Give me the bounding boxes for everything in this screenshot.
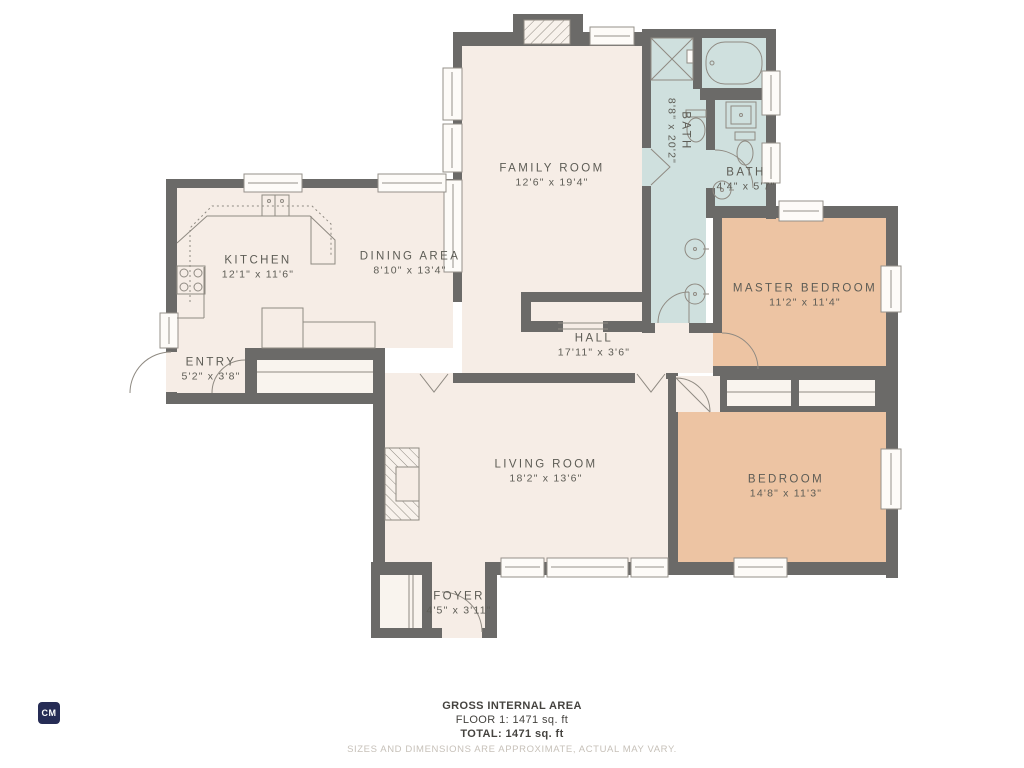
room-label-entry: ENTRY 5'2" x 3'8" xyxy=(181,356,240,385)
room-label-family-room: FAMILY ROOM 12'6" x 19'4" xyxy=(499,162,604,191)
room-label-dining-area: DINING AREA 8'10" x 13'4" xyxy=(360,250,461,279)
room-label-bath-small: BATH 4'4" x 5'7" xyxy=(716,166,775,195)
room-label-foyer: FOYER 4'5" x 3'11" xyxy=(426,590,491,619)
floor-plan xyxy=(0,0,1024,768)
footer-floor1: FLOOR 1: 1471 sq. ft xyxy=(0,713,1024,727)
room-label-kitchen: KITCHEN 12'1" x 11'6" xyxy=(222,254,294,283)
room-label-bath-large: BATH 8'8" x 20'2" xyxy=(664,98,693,164)
footer-total: TOTAL: 1471 sq. ft xyxy=(0,727,1024,741)
floorplan-page: FAMILY ROOM 12'6" x 19'4" BATH 8'8" x 20… xyxy=(0,0,1024,768)
cm-logo: CM xyxy=(38,702,60,724)
chimney-icon xyxy=(524,20,570,44)
room-label-master-bedroom: MASTER BEDROOM 11'2" x 11'4" xyxy=(733,282,877,311)
footer: GROSS INTERNAL AREA FLOOR 1: 1471 sq. ft… xyxy=(0,699,1024,756)
footer-disclaimer: SIZES AND DIMENSIONS ARE APPROXIMATE, AC… xyxy=(0,743,1024,756)
footer-gross-area: GROSS INTERNAL AREA xyxy=(0,699,1024,713)
room-label-bedroom: BEDROOM 14'8" x 11'3" xyxy=(748,473,824,502)
room-label-living-room: LIVING ROOM 18'2" x 13'6" xyxy=(494,458,597,487)
room-label-hall: HALL 17'11" x 3'6" xyxy=(558,332,630,361)
fireplace-icon xyxy=(385,448,419,520)
